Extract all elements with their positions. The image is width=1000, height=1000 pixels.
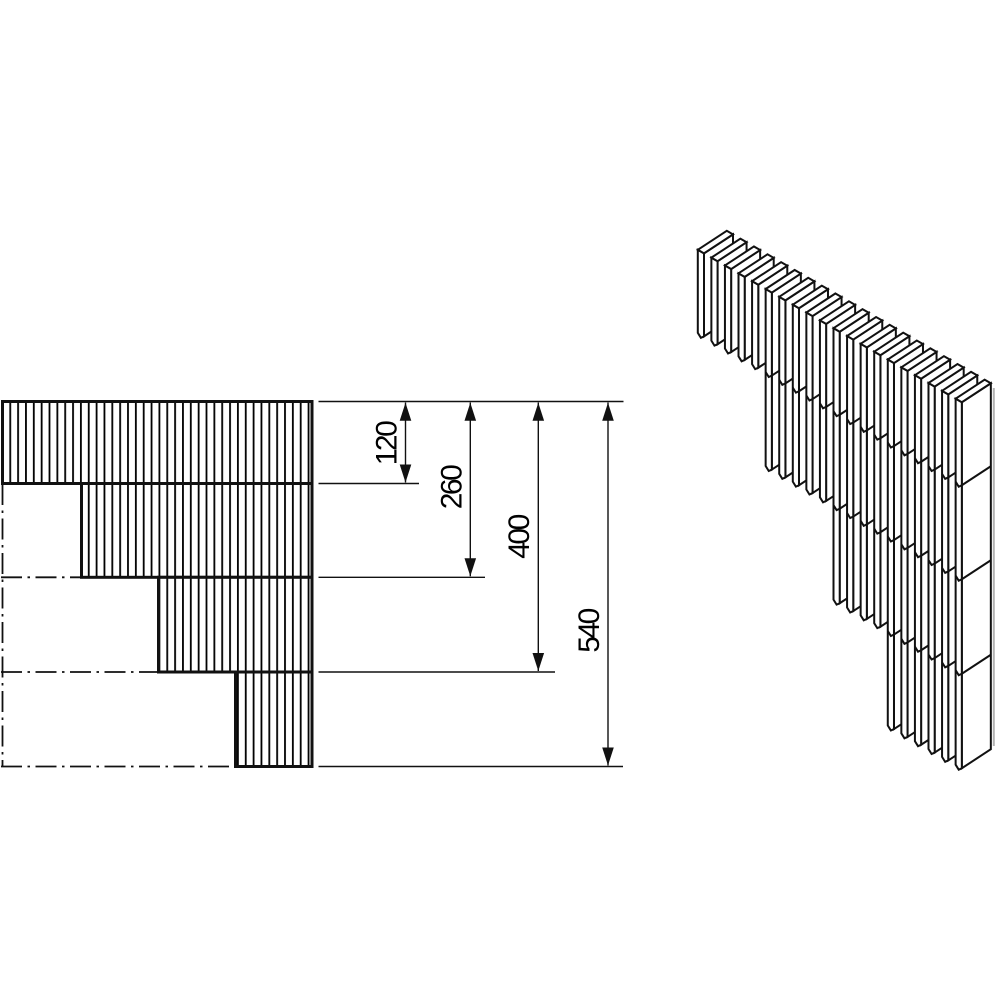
svg-text:540: 540 — [573, 608, 606, 652]
svg-text:120: 120 — [371, 421, 404, 465]
svg-text:260: 260 — [436, 465, 469, 509]
svg-text:400: 400 — [503, 514, 536, 558]
